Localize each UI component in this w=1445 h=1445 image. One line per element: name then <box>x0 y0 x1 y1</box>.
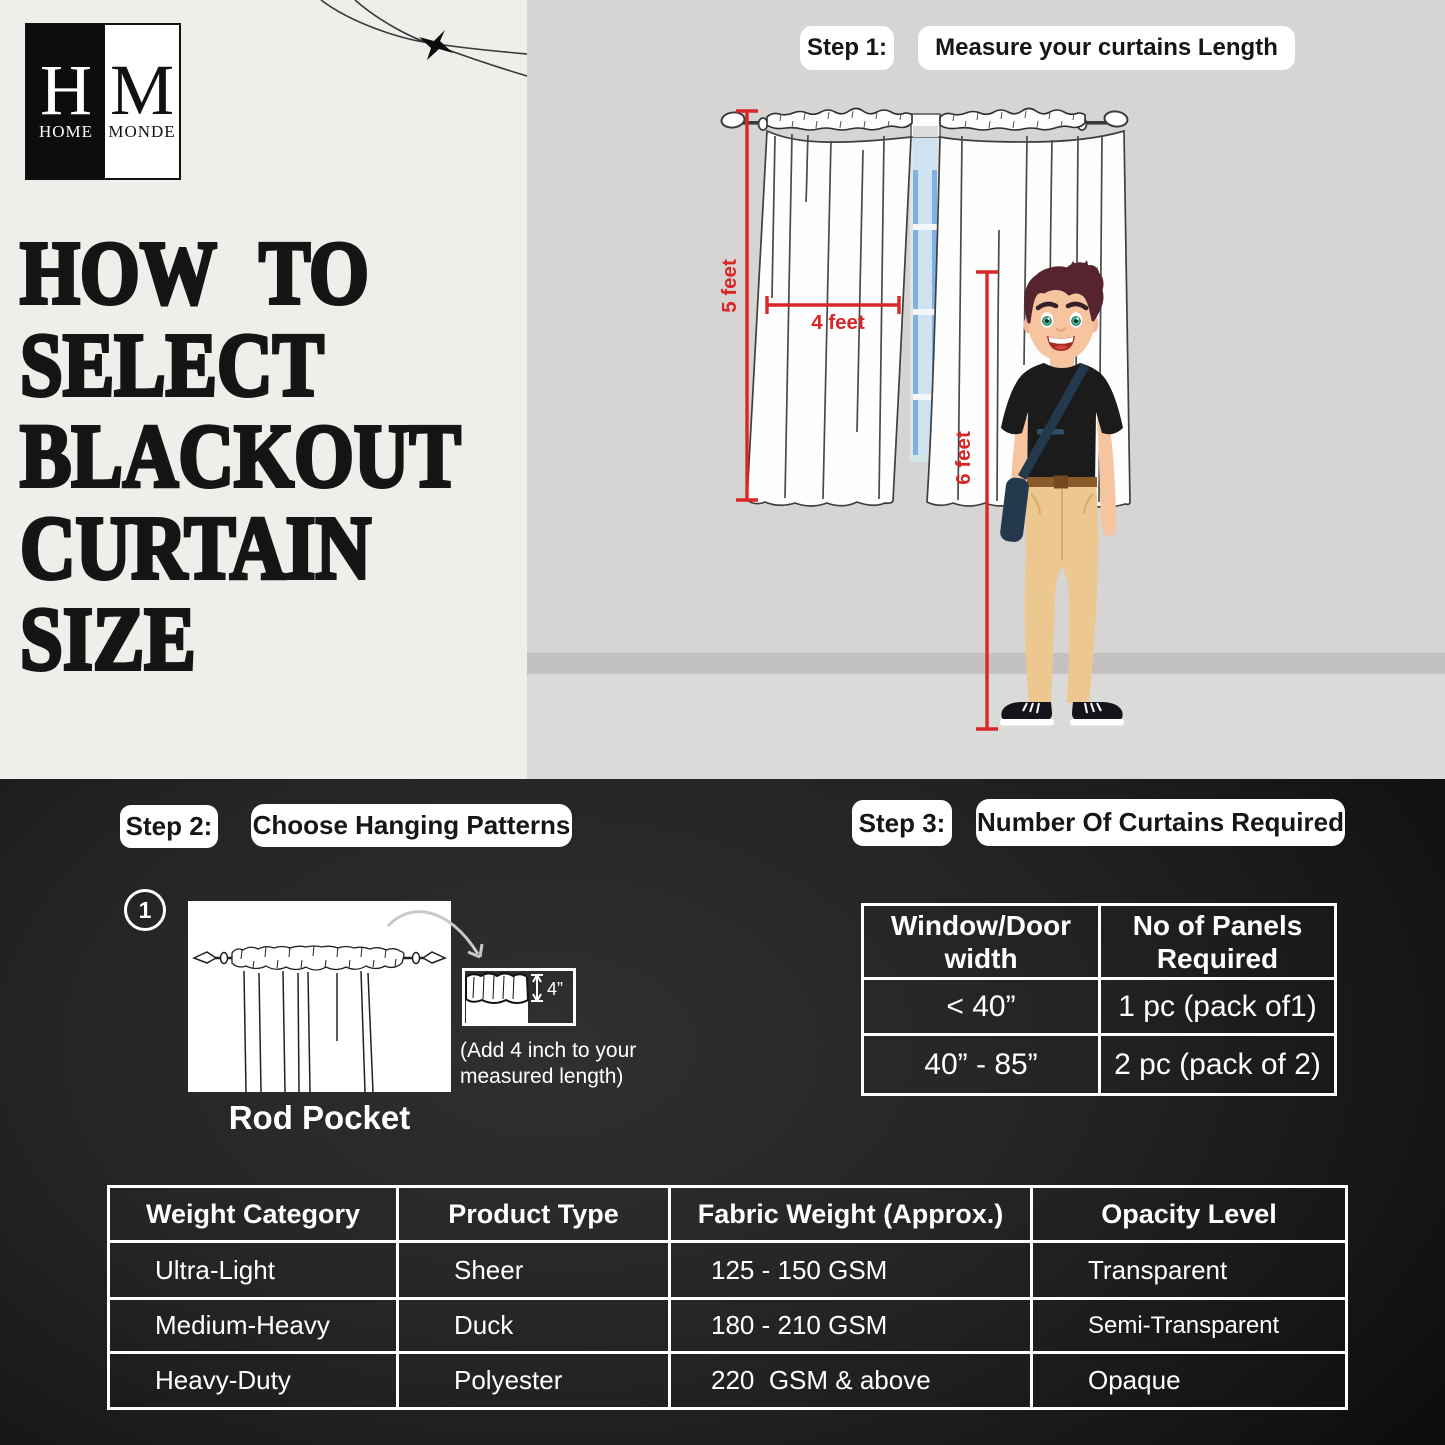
svg-text:4”: 4” <box>547 979 563 999</box>
svg-text:4 feet: 4 feet <box>811 311 865 334</box>
svg-text:5 feet: 5 feet <box>718 259 741 313</box>
svg-text:6 feet: 6 feet <box>952 431 975 485</box>
